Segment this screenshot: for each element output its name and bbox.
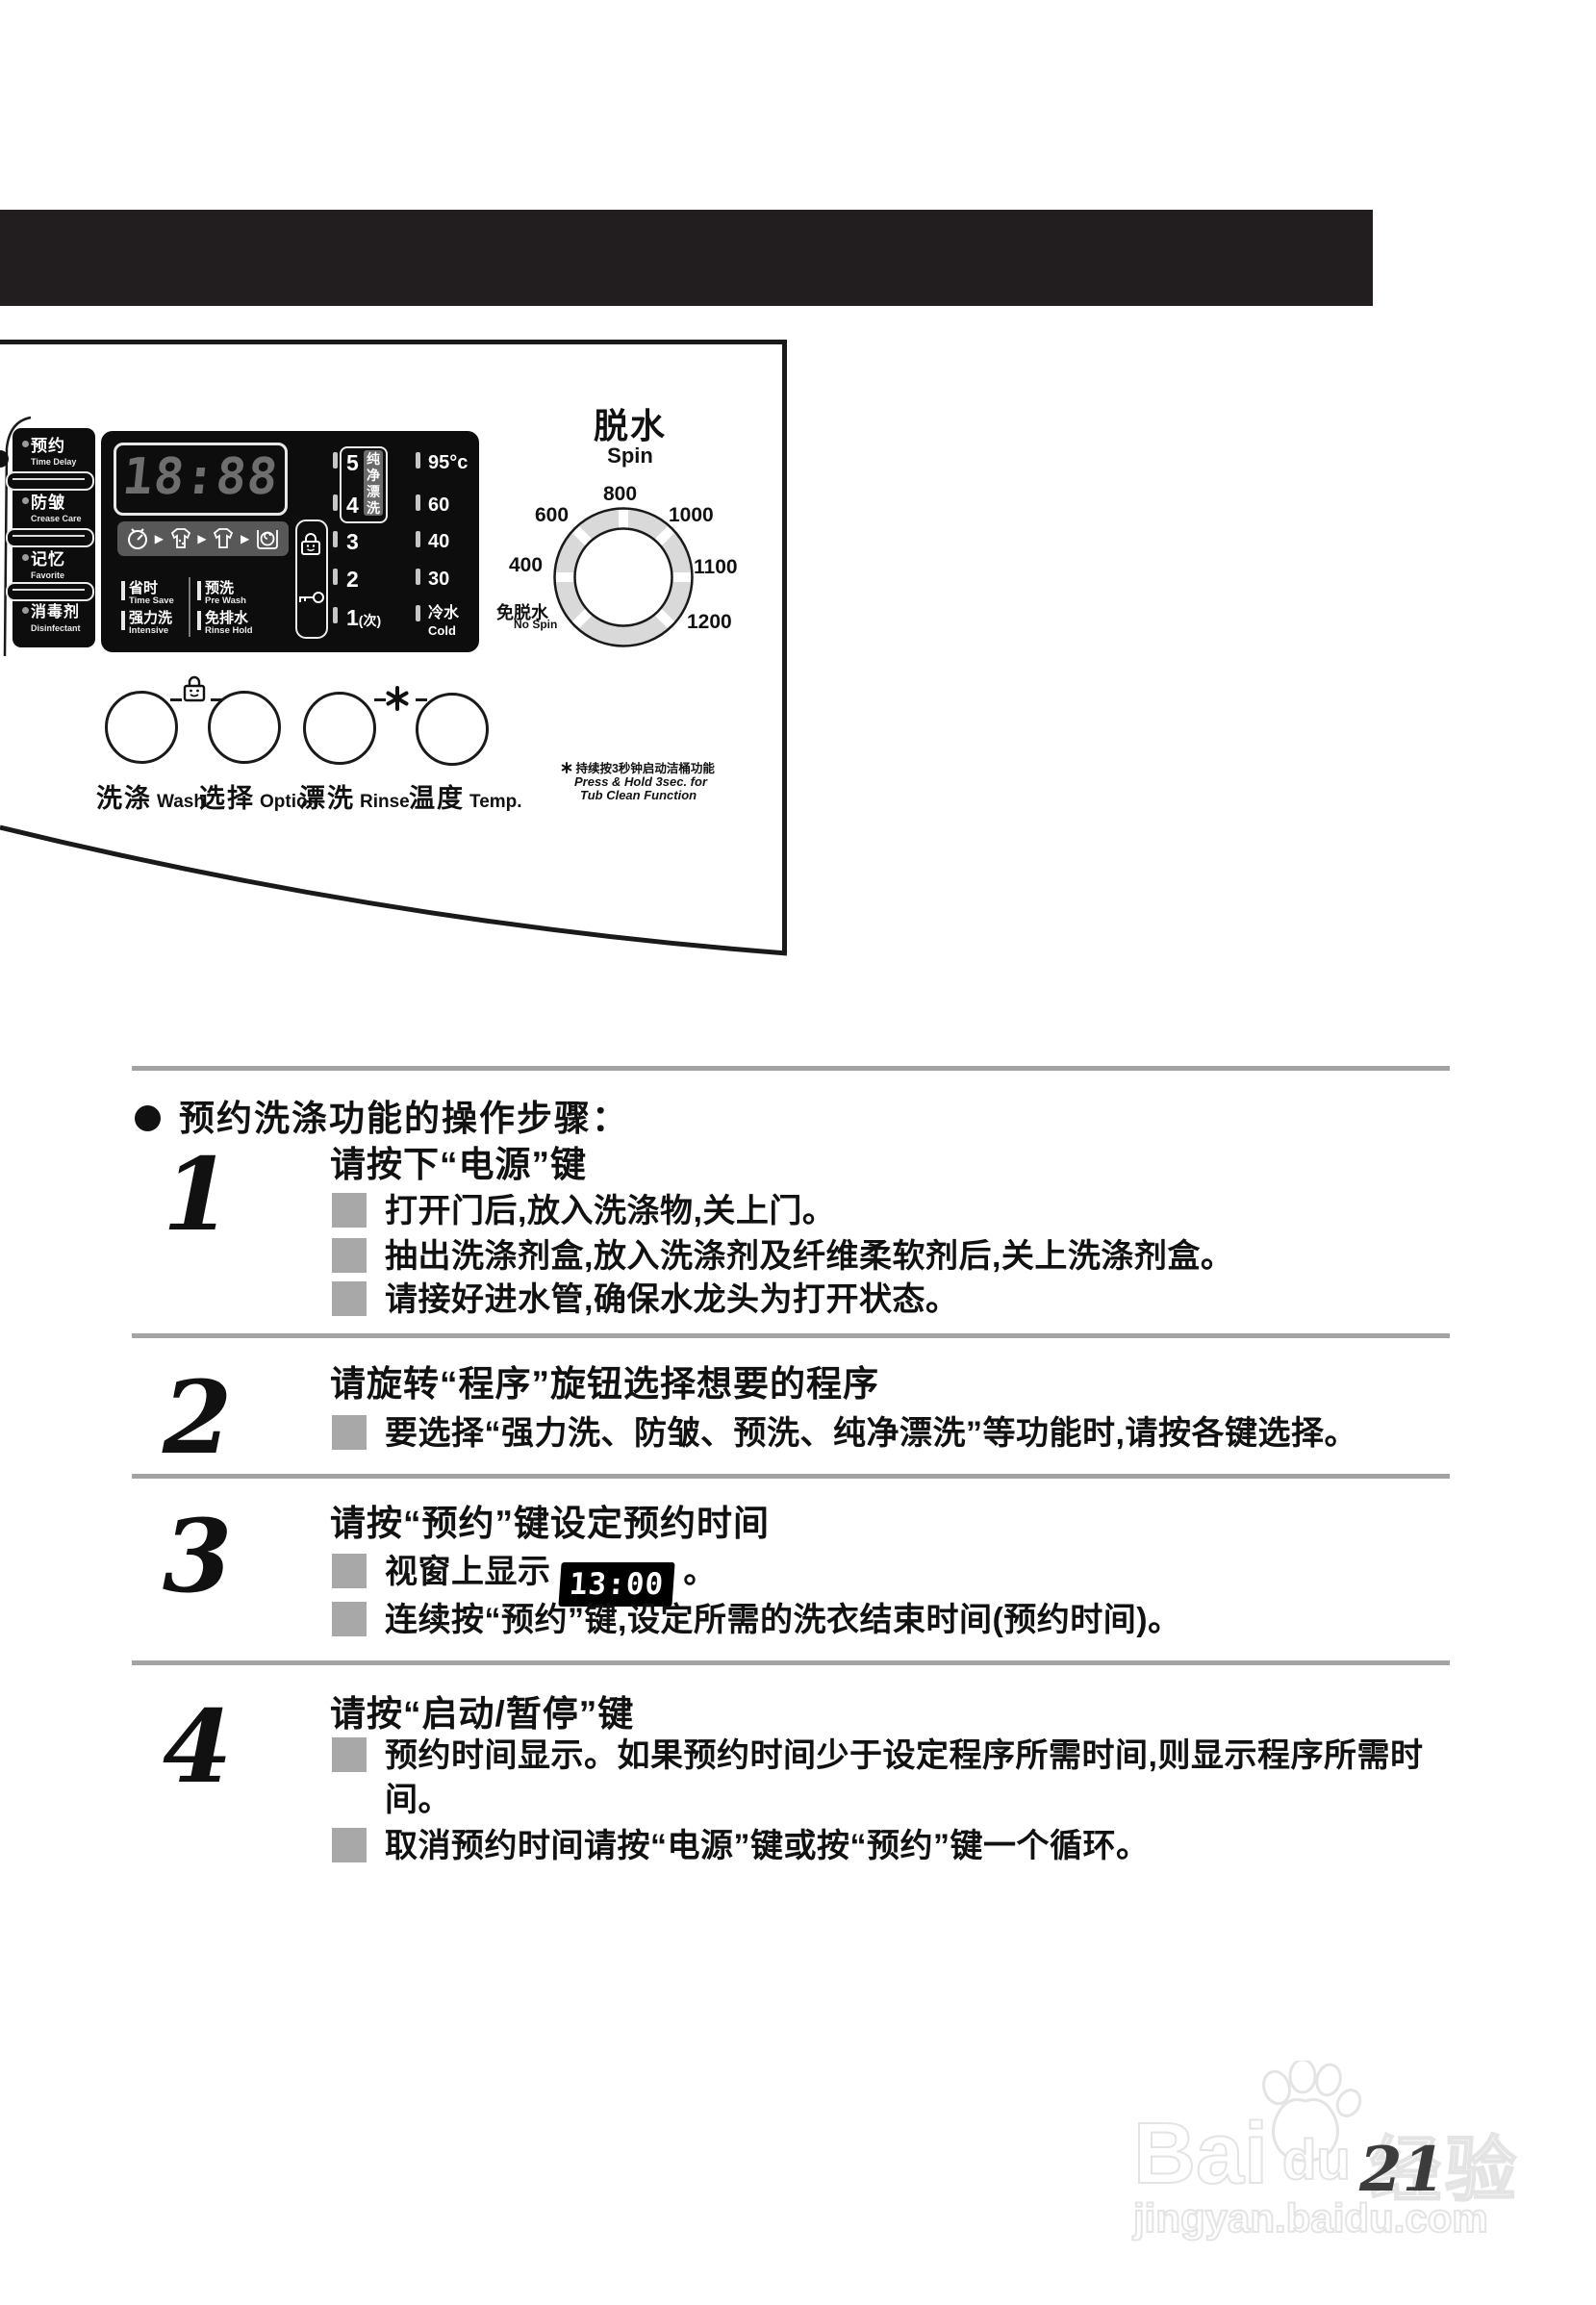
- rinse-shirt-icon: [212, 527, 235, 550]
- time-display: 18:88: [114, 447, 289, 507]
- temp-40: 40: [428, 532, 449, 551]
- step-number: 4: [154, 1699, 241, 1795]
- temp-led-tick: [416, 531, 420, 547]
- rinse-count-2: 2: [346, 569, 359, 591]
- side-label-en: Crease Care: [31, 514, 82, 523]
- key-icon: [296, 589, 325, 606]
- arrow-icon: ▶: [241, 533, 249, 545]
- side-label-disinfectant: 消毒剂: [31, 603, 80, 621]
- temp-led-tick: [416, 569, 420, 585]
- side-label-time-delay: 预约: [31, 437, 65, 455]
- lock-key-box: [295, 519, 328, 639]
- rinse-count-3: 3: [346, 531, 359, 553]
- section-divider: [132, 1333, 1450, 1338]
- page-number: 21: [1359, 2134, 1445, 2206]
- step-title: 请按“预约”键设定预约时间: [330, 1503, 770, 1545]
- step-number: 3: [154, 1508, 241, 1605]
- spin-800: 800: [603, 484, 637, 505]
- rinse-led-tick: [333, 494, 338, 511]
- bullet-square: [332, 1828, 367, 1862]
- wash-shirt-icon: [169, 527, 192, 550]
- option-intensive-zh: 强力洗: [129, 611, 172, 626]
- option-led-tick: [121, 611, 125, 630]
- step-number: 2: [154, 1370, 241, 1466]
- step-bullet: 抽出洗涤剂盒,放入洗涤剂及纤维柔软剂后,关上洗涤剂盒。: [385, 1234, 1477, 1279]
- option-led-tick: [197, 611, 201, 630]
- tub-clean-note: 持续按3秒钟启动洁桶功能 Press & Hold 3sec. for Tub …: [561, 762, 724, 802]
- option-en: Time Save: [129, 596, 174, 606]
- temp-button: [416, 693, 489, 766]
- option-button: [208, 691, 281, 764]
- bullet-square: [332, 1193, 367, 1228]
- bullet-text: 视窗上显示: [385, 1554, 551, 1590]
- temp-30: 30: [428, 570, 449, 589]
- section-divider: [132, 1066, 1450, 1071]
- temp-cold-zh: 冷水: [428, 604, 459, 623]
- spin-1100: 1100: [694, 557, 738, 578]
- side-button-pill: [6, 528, 94, 547]
- option-time-save-zh: 省时: [129, 581, 158, 596]
- rinse-led-tick: [333, 569, 338, 585]
- baidu-watermark-du: du: [1282, 2128, 1351, 2192]
- led-dot: [22, 607, 29, 614]
- arrow-icon: ▶: [197, 533, 206, 545]
- timer-icon: [126, 526, 149, 551]
- time-display-window: 18:88: [114, 443, 288, 516]
- option-led-tick: [121, 581, 125, 600]
- side-label-en: Favorite: [31, 570, 64, 580]
- spin-600: 600: [535, 505, 569, 526]
- program-flow-row: ▶ ▶ ▶: [117, 521, 289, 556]
- side-button-pill: [6, 582, 94, 601]
- option-en: Rinse Hold: [205, 626, 253, 636]
- led-dot: [22, 441, 29, 447]
- section-divider: [132, 1474, 1450, 1479]
- rinse-button: [303, 692, 376, 765]
- figure-top-border: [0, 340, 787, 344]
- child-lock-mark-icon: [181, 674, 208, 705]
- side-label-en: Disinfectant: [31, 623, 81, 633]
- bullet-square: [332, 1415, 367, 1450]
- figure-bottom-curve: [0, 820, 789, 964]
- spin-title-en: Spin: [577, 444, 683, 468]
- spin-no-spin-en: No Spin: [514, 618, 557, 631]
- spin-1200: 1200: [687, 612, 732, 633]
- step-bullet: 请接好进水管,确保水龙头为打开状态。: [385, 1278, 1477, 1322]
- rinse-led-tick: [333, 531, 338, 547]
- spin-1000: 1000: [669, 505, 714, 526]
- temp-led-tick: [416, 452, 420, 469]
- bullet-square: [332, 1281, 367, 1316]
- bullet-square: [332, 1737, 367, 1772]
- heading-bullet: [135, 1105, 161, 1131]
- option-en: Pre Wash: [205, 596, 246, 606]
- temp-button-label: 温度Temp.: [409, 777, 522, 815]
- star-footnote-icon: [561, 762, 572, 773]
- option-led-tick: [197, 581, 201, 600]
- step-bullet: 预约时间显示。如果预约时间少于设定程序所需时间,则显示程序所需时间。: [385, 1734, 1477, 1822]
- pure-rinse-vertical-label: 纯净漂洗: [364, 450, 383, 516]
- spin-400: 400: [509, 555, 543, 576]
- bullet-square: [332, 1554, 367, 1588]
- step-number: 1: [154, 1147, 241, 1243]
- step-bullet: 取消预约时间请按“电源”键或按“预约”键一个循环。: [385, 1824, 1477, 1868]
- temp-95: 95°c: [428, 453, 468, 472]
- rinse-count-5: 5: [346, 452, 359, 474]
- temp-60: 60: [428, 495, 449, 515]
- option-en: Intensive: [129, 626, 168, 636]
- section-divider: [132, 1660, 1450, 1665]
- spin-title-zh: 脱水: [577, 408, 683, 444]
- spin-tub-icon: [255, 527, 280, 550]
- side-label-crease-care: 防皱: [31, 494, 65, 512]
- arrow-icon: ▶: [155, 533, 164, 545]
- side-button-column: 预约 Time Delay 防皱 Crease Care 记忆 Favorite…: [13, 428, 95, 647]
- led-dot: [22, 497, 29, 504]
- rinse-led-tick: [333, 452, 338, 469]
- bullet-text-end: 。: [683, 1554, 717, 1590]
- star-mark-icon: [383, 684, 412, 713]
- side-button-pill: [6, 471, 94, 491]
- step-bullet: 要选择“强力洗、防皱、预洗、纯净漂洗”等功能时,请按各键选择。: [385, 1411, 1477, 1456]
- bullet-square: [332, 1238, 367, 1273]
- bullet-square: [332, 1602, 367, 1636]
- step-bullet: 连续按“预约”键,设定所需的洗衣结束时间(预约时间)。: [385, 1598, 1477, 1642]
- step-title: 请按下“电源”键: [330, 1144, 587, 1186]
- rinse-count-4: 4: [346, 494, 359, 517]
- step-bullet: 打开门后,放入洗涤物,关上门。: [385, 1189, 1477, 1233]
- side-label-favorite: 记忆: [31, 550, 65, 569]
- rinse-button-label: 漂洗Rinse: [299, 777, 410, 815]
- chapter-banner: [0, 210, 1373, 306]
- side-label-en: Time Delay: [31, 457, 76, 467]
- rinse-led-tick: [333, 607, 338, 623]
- dash: [416, 698, 427, 701]
- manual-page: 预约 Time Delay 防皱 Crease Care 记忆 Favorite…: [0, 0, 1596, 2305]
- section-heading: 预约洗涤功能的操作步骤：: [179, 1098, 629, 1140]
- rinse-count-1: 1(次): [346, 607, 381, 632]
- step-title: 请旋转“程序”旋钮选择想要的程序: [330, 1363, 879, 1406]
- child-lock-icon: [298, 531, 323, 558]
- display-panel: 18:88 ▶ ▶ ▶: [101, 431, 479, 652]
- temp-led-tick: [416, 605, 420, 621]
- led-dot: [22, 554, 29, 561]
- temp-led-tick: [416, 494, 420, 511]
- dash: [211, 698, 222, 701]
- wash-button-label: 洗涤Wash: [96, 777, 205, 815]
- option-divider: [189, 577, 190, 637]
- temp-cold-en: Cold: [428, 621, 456, 641]
- option-rinse-hold-zh: 免排水: [205, 611, 248, 626]
- wash-button: [105, 691, 178, 764]
- step-title: 请按“启动/暂停”键: [330, 1693, 634, 1735]
- option-pre-wash-zh: 预洗: [205, 581, 234, 596]
